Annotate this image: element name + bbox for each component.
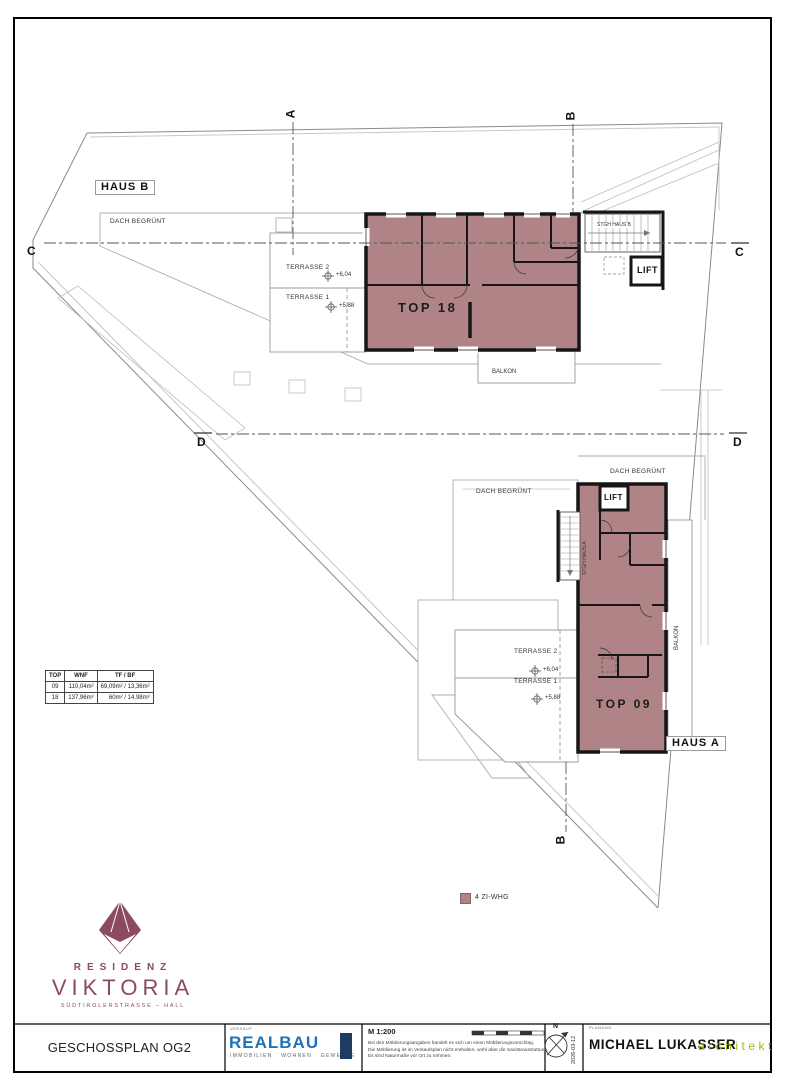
section-c-right: C — [735, 246, 744, 258]
legend-label: 4 ZI-WHG — [475, 894, 509, 901]
lift-upper-label: LIFT — [637, 266, 658, 275]
logo-viktoria: VIKTORIA — [20, 977, 226, 999]
table-header-row: TOP WNF TF / BF — [46, 671, 154, 682]
lift-lower-label: LIFT — [604, 494, 623, 502]
table-row: 09 110,04m² 69,09m² / 13,36m² — [46, 682, 154, 693]
logo-address: SÜDTIROLERSTRASSE – HALL — [20, 1004, 226, 1010]
terrasse2-upper-level: +6,04 — [336, 272, 351, 278]
terrasse2-lower-label: TERRASSE 2 — [514, 649, 557, 656]
note-line-3: Es sind Naturmaße vor Ort zu nehmen. — [368, 1054, 548, 1061]
terrace-upper — [270, 233, 366, 352]
plan-title: GESCHOSSPLAN OG2 — [14, 1041, 225, 1054]
terrasse1-lower-level: +5,88 — [545, 695, 560, 701]
logo-diamond-icon — [99, 901, 141, 954]
balkon-upper-outline — [478, 350, 575, 383]
section-d-right: D — [733, 436, 742, 448]
section-b-top: B — [564, 112, 576, 121]
balkon-upper-label: BALKON — [492, 369, 516, 375]
stgh-haus-a-label: STGH HAUS A — [583, 540, 588, 576]
north-compass-icon — [545, 1032, 568, 1057]
realbau-tagline: IMMOBILIEN WOHNEN GEWERBE — [230, 1054, 356, 1059]
terrasse1-lower-label: TERRASSE 1 — [514, 679, 557, 686]
logo-residenz: RESIDENZ — [20, 963, 226, 973]
planung-label: PLANUNG — [589, 1026, 612, 1030]
haus-b-label: HAUS B — [95, 180, 155, 195]
dach-begruent-lower-left-label: DACH BEGRÜNT — [476, 489, 532, 496]
section-a-top: A — [284, 110, 296, 119]
balkon-lower-outline — [668, 520, 692, 748]
scale-bar — [472, 1031, 544, 1035]
terrasse1-upper-level: +5,88 — [339, 303, 354, 309]
stgh-haus-b-label: STGH HAUS B — [596, 223, 632, 228]
dach-begruent-lower-right-label: DACH BEGRÜNT — [610, 469, 666, 476]
verkauf-label: VERKAUF — [230, 1027, 252, 1031]
col-tfbf: TF / BF — [97, 671, 153, 682]
terrasse1-upper-label: TERRASSE 1 — [286, 295, 329, 302]
cell-tfbf: 69,09m² / 13,36m² — [97, 682, 153, 693]
col-wnf: WNF — [65, 671, 97, 682]
cell-tfbf: 60m² / 14,98m² — [97, 693, 153, 704]
north-label: N — [553, 1023, 558, 1030]
cell-top: 18 — [46, 693, 65, 704]
cell-wnf: 110,04m² — [65, 682, 97, 693]
cell-wnf: 137,96m² — [65, 693, 97, 704]
scale-label: M 1:200 — [368, 1028, 396, 1036]
linework-svg — [0, 0, 785, 1080]
terrasse2-upper-label: TERRASSE 2 — [286, 265, 329, 272]
section-b-bottom: B — [554, 836, 566, 845]
legend-swatch — [460, 893, 471, 904]
table-row: 18 137,96m² 60m² / 14,98m² — [46, 693, 154, 704]
terrasse2-lower-level: +6,04 — [543, 667, 558, 673]
cell-top: 09 — [46, 682, 65, 693]
area-table: TOP WNF TF / BF 09 110,04m² 69,09m² / 13… — [45, 670, 154, 704]
architekt-label: architekt — [698, 1040, 775, 1052]
section-d-left: D — [197, 436, 206, 448]
section-c-left: C — [27, 245, 36, 257]
balkon-lower-label: BALKON — [674, 626, 680, 650]
col-top: TOP — [46, 671, 65, 682]
plan-date: 2026-03-12 — [572, 1036, 578, 1064]
haus-a-label: HAUS A — [666, 736, 726, 751]
top09-label: TOP 09 — [596, 698, 652, 710]
disclaimer-note: Bei den Möblierungsangaben handelt es si… — [368, 1041, 548, 1061]
top18-unit — [366, 214, 579, 350]
dach-begruent-upper-label: DACH BEGRÜNT — [110, 219, 166, 226]
top18-label: TOP 18 — [398, 301, 457, 314]
realbau-logo: REALBAU — [229, 1034, 319, 1051]
note-line-1: Bei den Möblierungsangaben handelt es si… — [368, 1041, 548, 1048]
top09-unit — [578, 484, 666, 752]
realbau-seal — [340, 1033, 352, 1059]
plan-sheet: HAUS B DACH BEGRÜNT TERRASSE 2 +6,04 TER… — [0, 0, 785, 1080]
stairs-haus-a — [558, 510, 580, 582]
